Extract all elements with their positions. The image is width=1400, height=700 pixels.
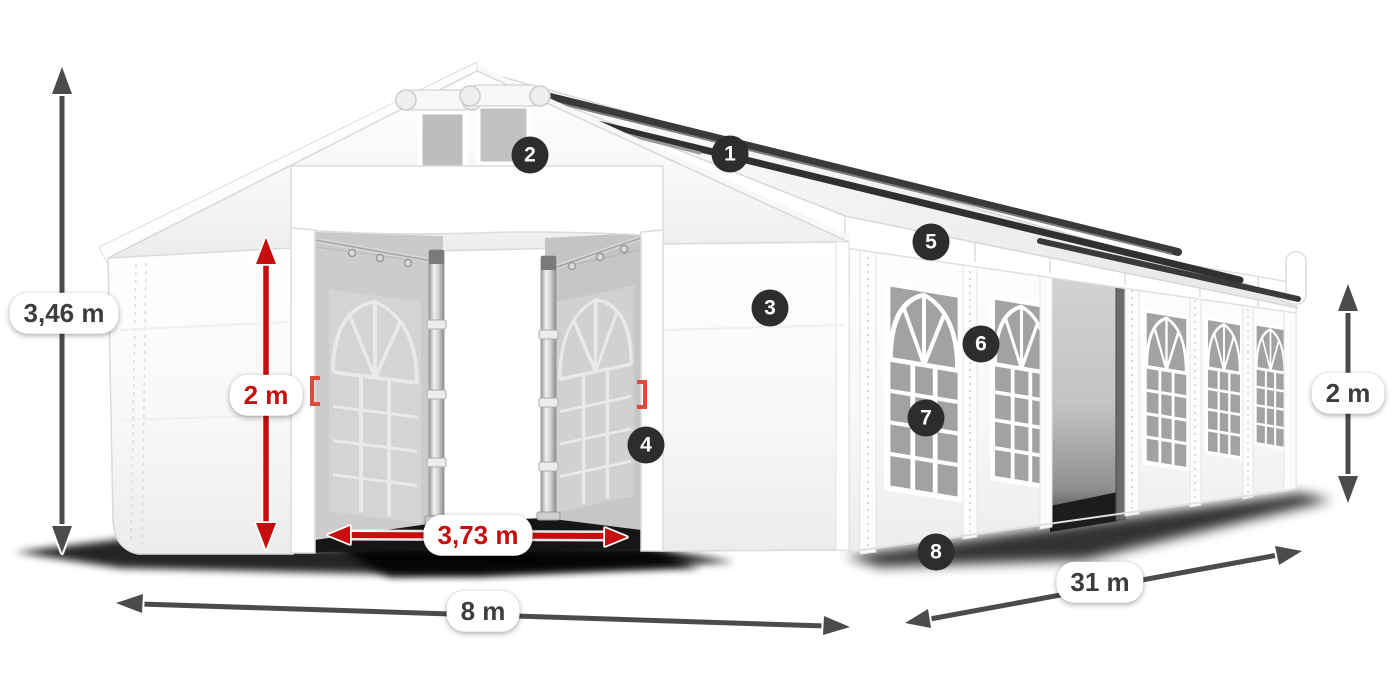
front-wall-right-panel — [661, 242, 849, 551]
label-door-width: 3,73 m — [424, 515, 533, 556]
callout-badge-8: 8 — [918, 534, 955, 571]
tent-dimension-diagram: 1 2 3 4 5 6 7 8 3,46 m 2 m 3,73 m 8 m 31… — [0, 0, 1400, 700]
callout-badge-6: 6 — [963, 326, 1000, 363]
label-side-height: 2 m — [1312, 373, 1385, 414]
label-total-height: 3,46 m — [10, 293, 119, 334]
side-window-1 — [884, 280, 964, 503]
side-window-5 — [1254, 322, 1287, 450]
callout-badge-5: 5 — [913, 224, 950, 261]
side-entrance-opening — [1050, 247, 1125, 532]
label-door-height: 2 m — [230, 375, 303, 416]
doorway — [315, 232, 641, 552]
callout-badge-4: 4 — [628, 427, 665, 464]
door-poles — [425, 250, 560, 524]
label-side-length: 31 m — [1056, 562, 1143, 603]
callout-badge-7: 7 — [908, 400, 945, 437]
entrance-head-band — [291, 166, 663, 236]
tent-illustration — [0, 0, 1400, 700]
label-front-width: 8 m — [447, 591, 520, 632]
side-window-4 — [1205, 316, 1243, 460]
vent-window-left — [420, 112, 465, 168]
callout-badge-3: 3 — [752, 290, 789, 327]
side-window-3 — [1143, 308, 1190, 472]
side-entrance-pole — [1116, 258, 1125, 520]
callout-badge-2: 2 — [512, 137, 549, 174]
callout-badge-1: 1 — [712, 136, 749, 173]
